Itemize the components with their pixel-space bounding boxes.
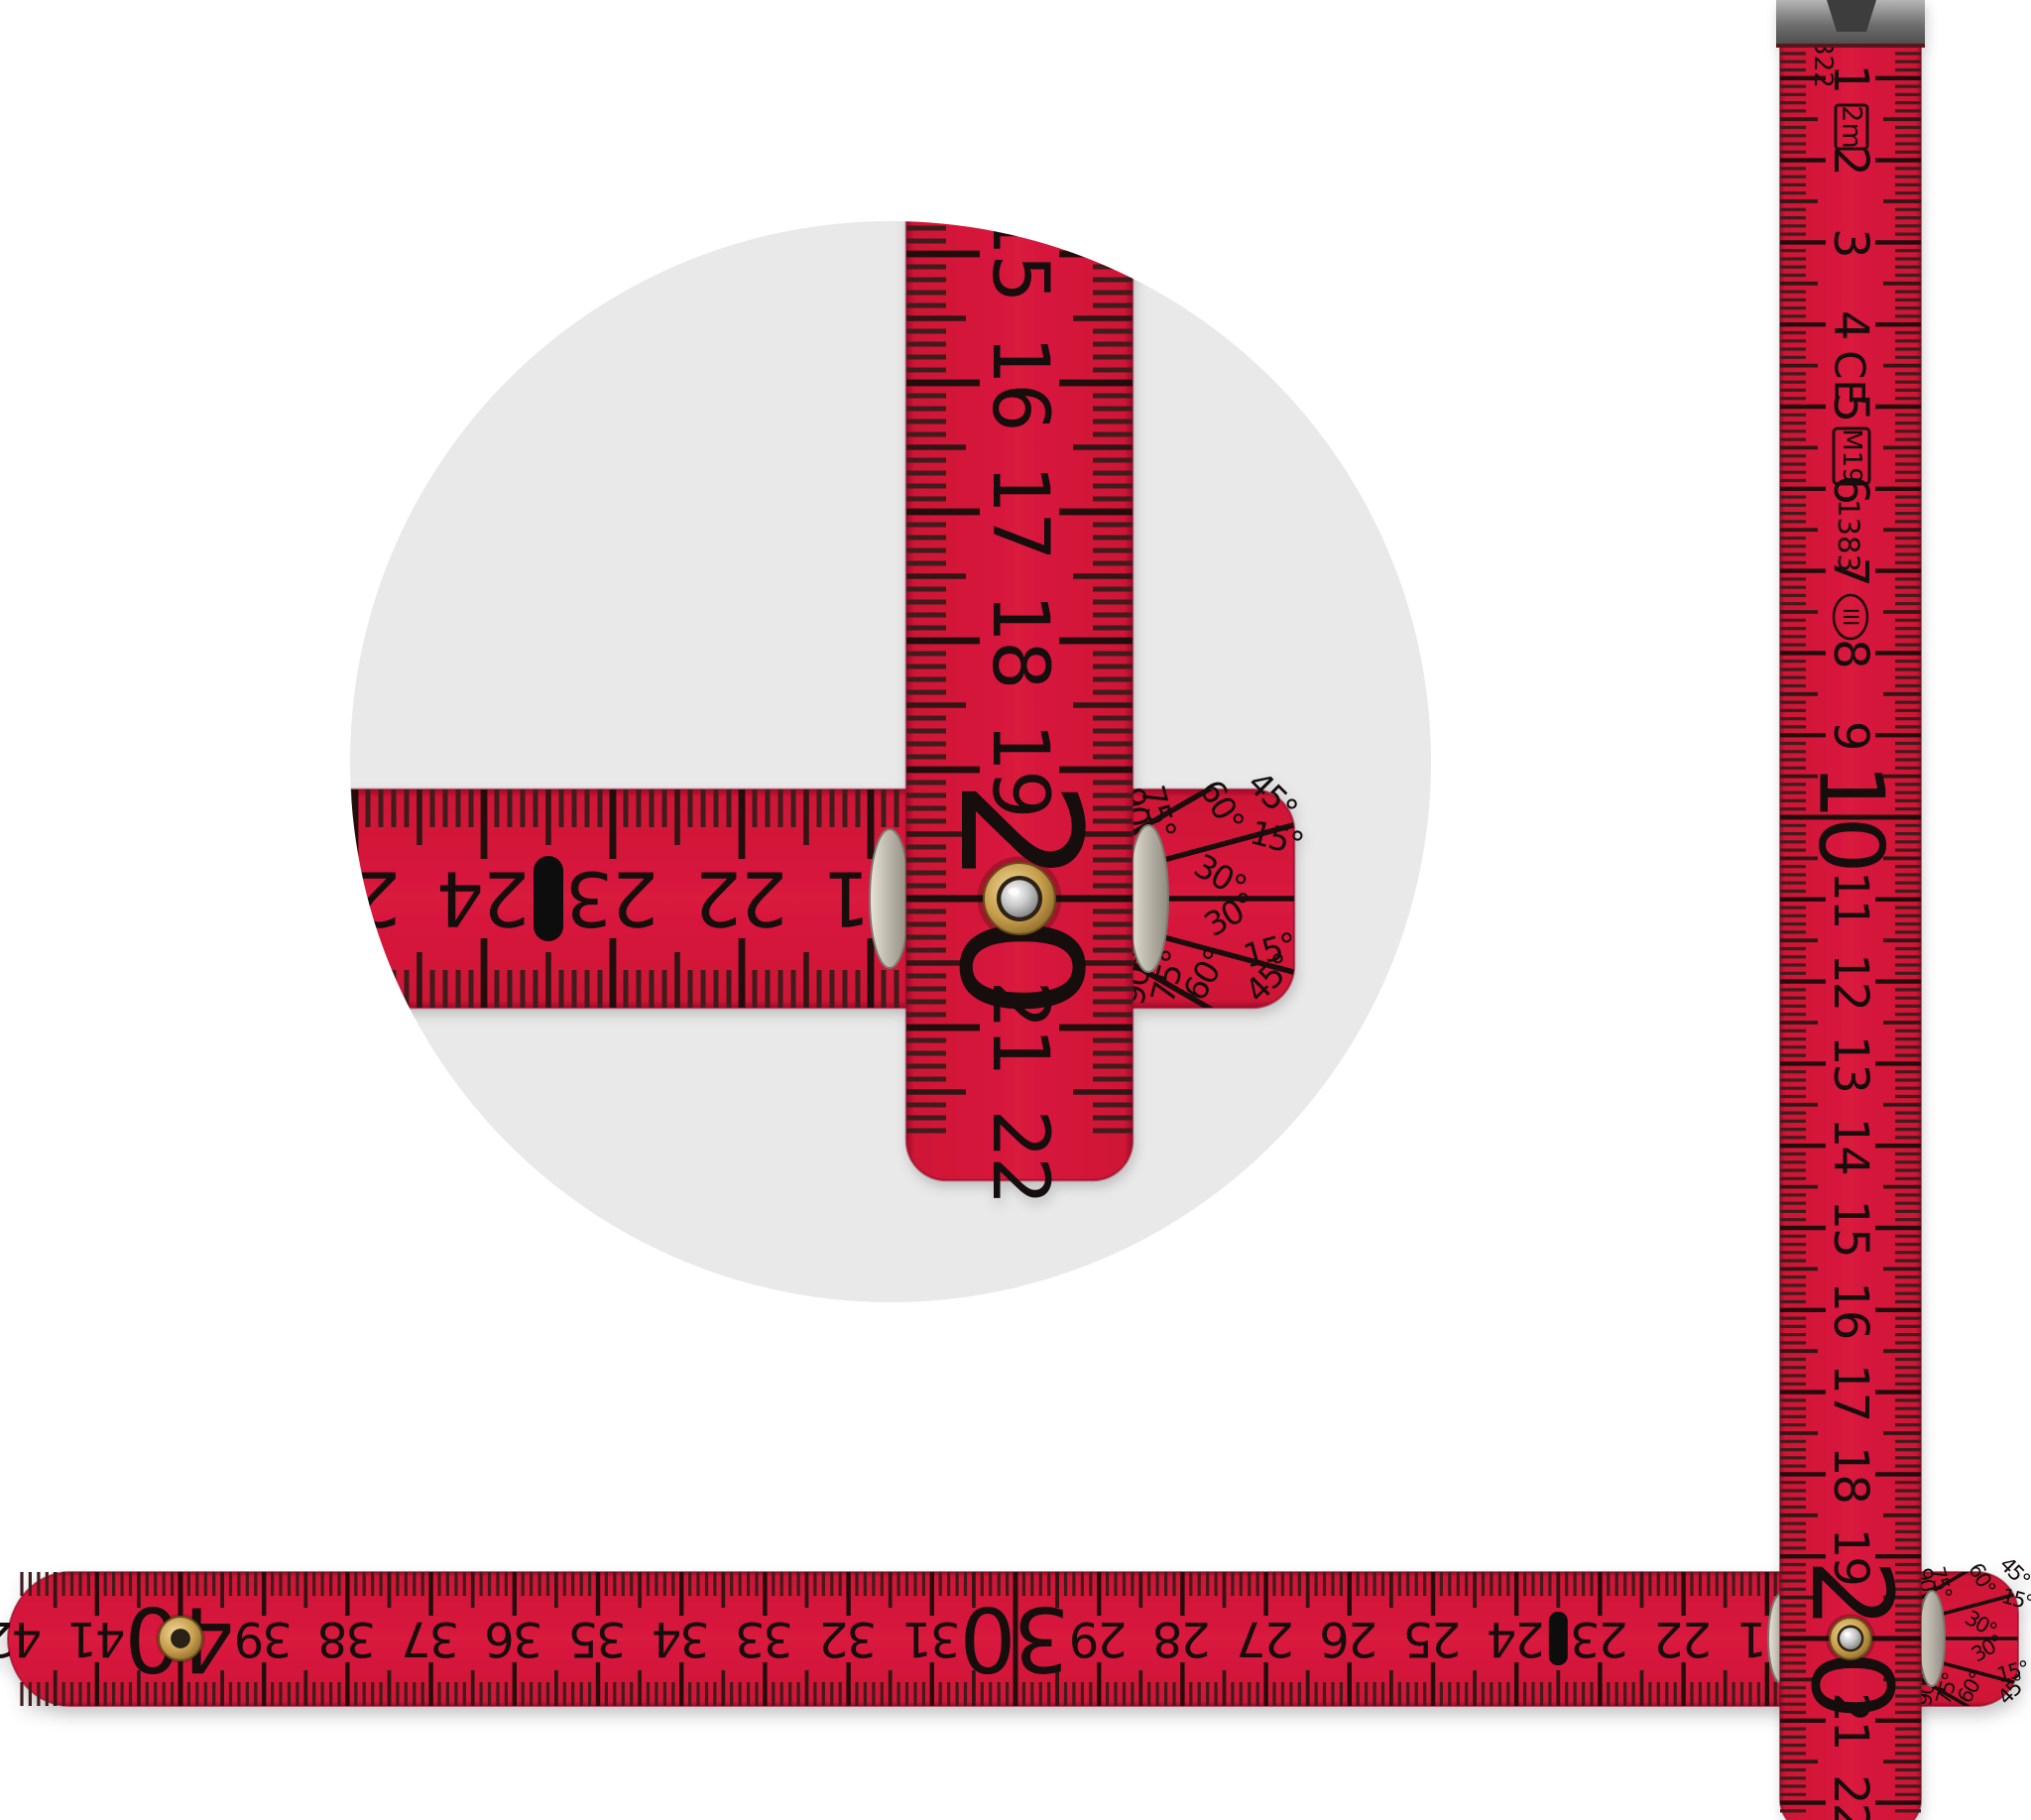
hinge-plate	[1129, 825, 1168, 972]
pill-marker	[534, 856, 563, 941]
dm-number: 1	[1799, 763, 1903, 817]
length-badge-label: 2m	[1837, 105, 1867, 148]
cm-number: 34	[654, 1611, 710, 1666]
cm-number: 22	[696, 855, 788, 943]
cm-number: 29	[1071, 1611, 1128, 1666]
cm-number: 38	[319, 1611, 376, 1666]
cm-number: 28	[1154, 1611, 1211, 1666]
rivet-steel-ball	[1840, 1628, 1861, 1649]
rivet-steel-ball	[1001, 880, 1037, 916]
cm-number: 22	[1823, 1774, 1878, 1820]
joint-rivet	[1826, 1614, 1875, 1663]
cm-number: 36	[486, 1611, 542, 1666]
cm-number: 13	[1823, 1035, 1878, 1092]
cm-number: 1	[1823, 64, 1878, 93]
cm-number: 26	[1321, 1611, 1377, 1666]
cm-number: 35	[569, 1611, 626, 1666]
cm-number: 37	[403, 1611, 459, 1666]
cm-number: 31	[903, 1611, 960, 1666]
cm-number: 4	[1823, 310, 1878, 339]
cm-number: 24	[1489, 1611, 1545, 1666]
cm-number: 2	[1823, 146, 1878, 175]
cm-number: 23	[1572, 1611, 1628, 1666]
vertical-ruler-segment: 322 2m CE M19 1383 III 12345678910111213…	[1776, 0, 1925, 1820]
rivet-highlight	[1008, 888, 1019, 896]
cm-number: 3	[1823, 228, 1878, 257]
dm-number: 0	[961, 1587, 1015, 1691]
dm-number: 0	[1799, 816, 1903, 871]
product-photo: 15°15°30°30°45°45°60°60°75°75°90°90°2122…	[0, 0, 2031, 1820]
detail-circle-background	[350, 221, 1431, 1302]
hinge-plate	[870, 829, 909, 968]
cm-number: 16	[1823, 1281, 1878, 1338]
cm-number: 32	[820, 1611, 877, 1666]
hinge-plate	[1919, 1591, 1945, 1686]
cm-number: 21	[975, 980, 1064, 1074]
cm-number: 5	[1823, 393, 1878, 422]
cm-number: 18	[1823, 1446, 1878, 1503]
cm-number: 11	[1823, 871, 1878, 927]
cm-number: 8	[1823, 639, 1878, 667]
end-cap-edge	[1776, 44, 1925, 48]
rivet-highlight	[1844, 1632, 1851, 1637]
folding-rule-scene: 15°15°30°30°45°45°60°60°75°75°90°90°2122…	[0, 0, 2031, 1820]
cm-number: 17	[975, 464, 1064, 558]
cm-number: 14	[1823, 1118, 1878, 1174]
cm-number: 6	[1823, 475, 1878, 504]
rivet-center	[171, 1629, 190, 1648]
cm-number: 23	[567, 855, 659, 943]
cm-number: 7	[1823, 556, 1878, 585]
cm-number: 24	[438, 855, 531, 943]
pill-marker	[1549, 1612, 1568, 1665]
cm-number: 17	[1823, 1364, 1878, 1420]
cm-number: 42	[0, 1611, 42, 1666]
cm-number: 9	[1823, 721, 1878, 750]
cm-number: 33	[737, 1611, 793, 1666]
magnified-vertical-segment: 1516171819202122	[906, 193, 1133, 1204]
cm-number: 25	[1404, 1611, 1461, 1666]
cm-number: 16	[975, 335, 1064, 429]
cm-number: 41	[68, 1611, 125, 1666]
cm-number: 39	[236, 1611, 293, 1666]
cm-number: 12	[1823, 953, 1878, 1010]
accuracy-class-label: III	[1839, 608, 1862, 627]
cm-number: 21	[1823, 1692, 1878, 1749]
dm-number: 3	[1015, 1587, 1069, 1691]
cm-number: 15	[1823, 1199, 1878, 1256]
cm-number: 22	[975, 1109, 1064, 1203]
cm-number: 22	[1655, 1611, 1712, 1666]
cm-number: 27	[1238, 1611, 1294, 1666]
cm-number: 18	[975, 593, 1064, 687]
